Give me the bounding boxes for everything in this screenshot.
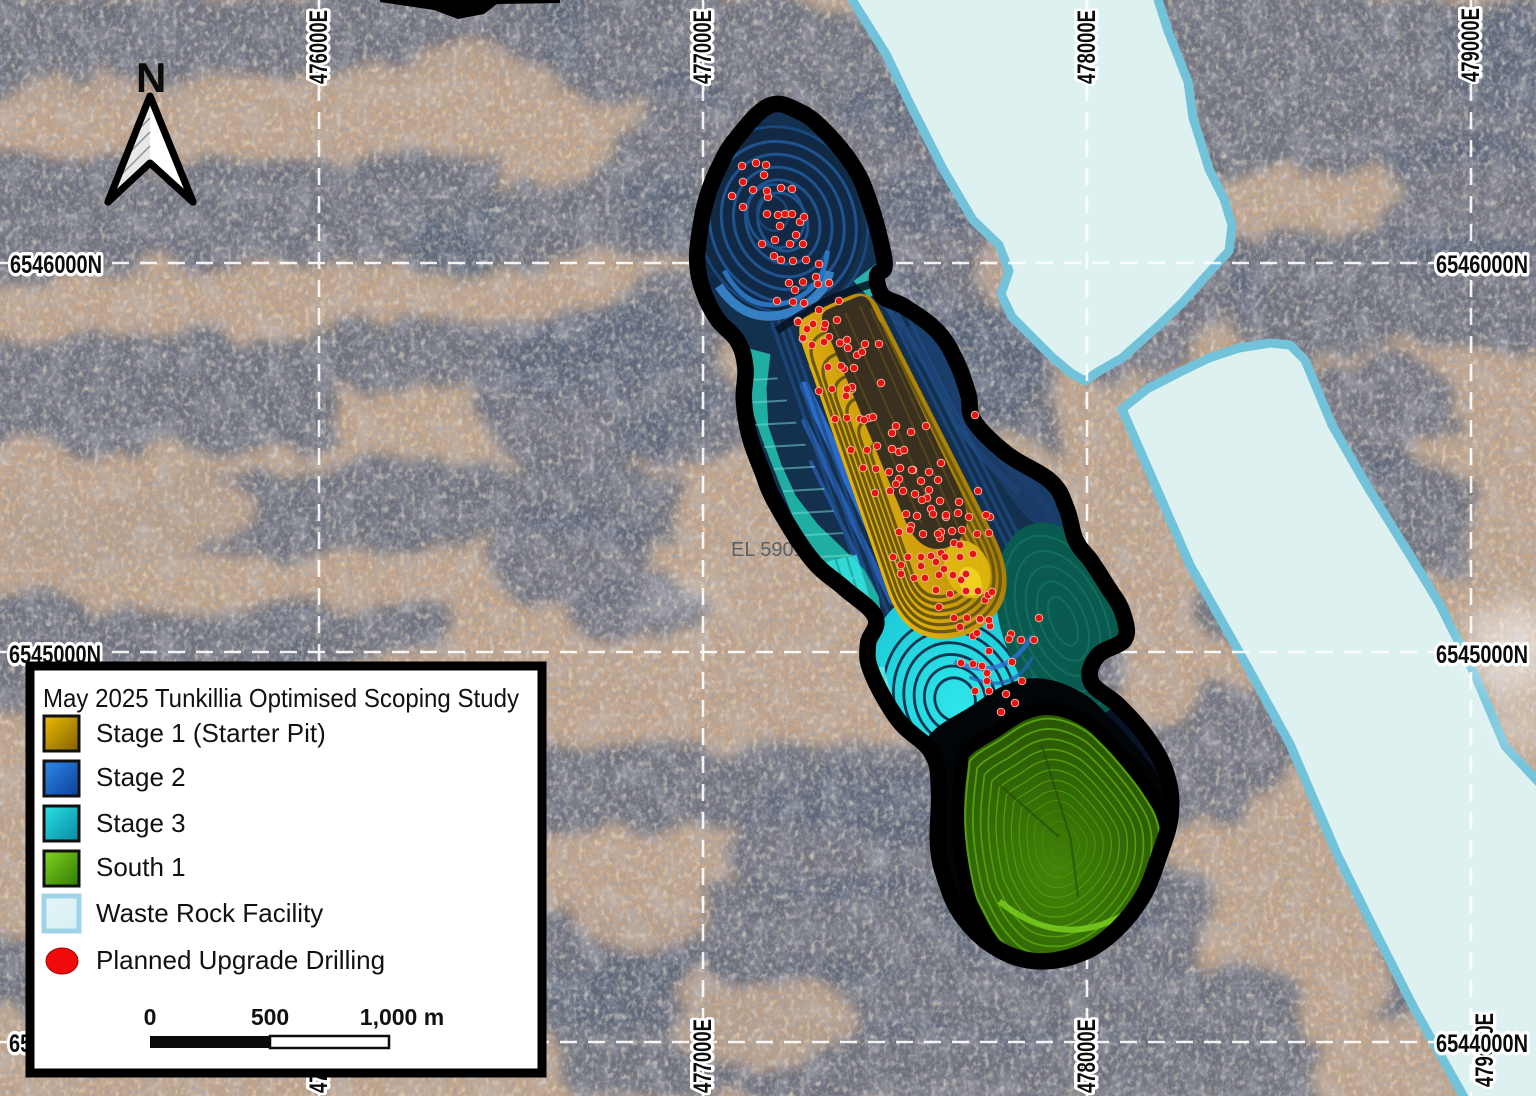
svg-text:0: 0 [144,1004,157,1030]
svg-text:Stage 2: Stage 2 [96,762,186,792]
svg-text:1,000 m: 1,000 m [360,1004,444,1030]
svg-text:Stage 3: Stage 3 [96,808,186,838]
svg-text:479000E: 479000E [1457,8,1485,82]
svg-text:6544000N: 6544000N [1436,1030,1528,1058]
svg-text:South 1: South 1 [96,852,186,882]
svg-text:500: 500 [251,1004,289,1030]
svg-text:Waste Rock Facility: Waste Rock Facility [96,898,323,928]
svg-text:May 2025 Tunkillia Optimised S: May 2025 Tunkillia Optimised Scoping Stu… [43,683,519,713]
svg-text:6546000N: 6546000N [1436,251,1528,279]
svg-text:478000E: 478000E [1073,1019,1101,1093]
svg-text:477000E: 477000E [689,1019,717,1093]
svg-text:478000E: 478000E [1073,10,1101,84]
svg-text:477000E: 477000E [689,10,717,84]
svg-text:Planned Upgrade Drilling: Planned Upgrade Drilling [96,945,385,975]
svg-text:476000E: 476000E [305,10,333,84]
svg-text:6546000N: 6546000N [10,251,102,279]
svg-text:Stage 1 (Starter Pit): Stage 1 (Starter Pit) [96,718,326,748]
svg-text:6545000N: 6545000N [1436,641,1528,669]
